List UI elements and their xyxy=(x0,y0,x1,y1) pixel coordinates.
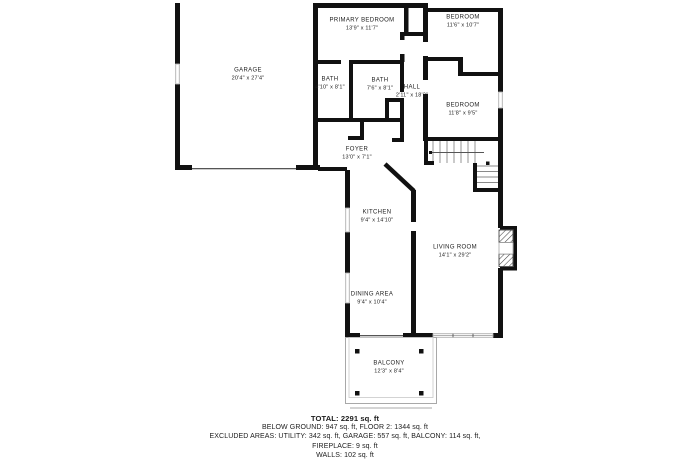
room-label-hall: HALL 2'11" x 18'2" xyxy=(396,85,428,100)
room-dims: 9'4" x 10'4" xyxy=(351,299,394,306)
room-dims: 2'11" x 18'2" xyxy=(396,92,428,99)
room-label-bedroom-mid: BEDROOM 11'8" x 9'5" xyxy=(446,103,479,118)
room-name: GARAGE xyxy=(232,68,265,76)
exterior-walls xyxy=(175,3,503,338)
room-name: KITCHEN xyxy=(361,210,394,218)
room-name: BATH xyxy=(315,77,345,85)
summary-excluded: EXCLUDED AREAS: UTILITY: 342 sq. ft, GAR… xyxy=(0,432,690,441)
floorplan-drawing xyxy=(0,0,690,460)
floorplan-page: GARAGE 20'4" x 27'4" PRIMARY BEDROOM 13'… xyxy=(0,0,690,460)
room-dims: 9'4" x 14'10" xyxy=(361,217,394,224)
room-name: BALCONY xyxy=(373,361,404,369)
room-dims: 11'8" x 9'5" xyxy=(446,110,479,117)
area-summary: TOTAL: 2291 sq. ft BELOW GROUND: 947 sq.… xyxy=(0,414,690,460)
room-dims: 7'6" x 8'1" xyxy=(367,85,393,92)
room-dims: 13'0" x 7'1" xyxy=(342,154,372,161)
room-name: BEDROOM xyxy=(446,15,479,23)
summary-walls: WALLS: 102 sq. ft xyxy=(0,451,690,460)
summary-fireplace: FIREPLACE: 9 sq. ft xyxy=(0,442,690,451)
room-dims: 13'9" x 11'7" xyxy=(329,25,394,32)
room-label-living-room: LIVING ROOM 14'1" x 29'2" xyxy=(433,245,477,260)
room-name: PRIMARY BEDROOM xyxy=(329,18,394,26)
staircase xyxy=(424,141,503,192)
room-dims: 20'4" x 27'4" xyxy=(232,75,265,82)
room-name: DINING AREA xyxy=(351,292,394,300)
room-label-kitchen: KITCHEN 9'4" x 14'10" xyxy=(361,210,394,225)
room-dims: 11'6" x 10'7" xyxy=(446,22,479,29)
room-dims: 4'10" x 8'1" xyxy=(315,84,345,91)
room-label-bath-large: BATH 7'6" x 8'1" xyxy=(367,78,393,93)
room-label-garage: GARAGE 20'4" x 27'4" xyxy=(232,68,265,83)
room-label-foyer: FOYER 13'0" x 7'1" xyxy=(342,147,372,162)
room-label-bath-small: BATH 4'10" x 8'1" xyxy=(315,77,345,92)
room-name: LIVING ROOM xyxy=(433,245,477,253)
room-name: BEDROOM xyxy=(446,103,479,111)
summary-below-ground: BELOW GROUND: 947 sq. ft, FLOOR 2: 1344 … xyxy=(0,423,690,432)
room-label-dining-area: DINING AREA 9'4" x 10'4" xyxy=(351,292,394,307)
room-dims: 14'1" x 29'2" xyxy=(433,252,477,259)
room-label-bedroom-top: BEDROOM 11'6" x 10'7" xyxy=(446,15,479,30)
room-label-primary-bedroom: PRIMARY BEDROOM 13'9" x 11'7" xyxy=(329,18,394,33)
door-openings xyxy=(192,168,403,336)
diagonal-wall xyxy=(385,164,414,191)
fireplace xyxy=(499,226,517,271)
room-label-balcony: BALCONY 12'3" x 8'4" xyxy=(373,361,404,376)
summary-total: TOTAL: 2291 sq. ft xyxy=(0,414,690,423)
room-name: HALL xyxy=(396,85,428,93)
room-name: FOYER xyxy=(342,147,372,155)
room-dims: 12'3" x 8'4" xyxy=(373,368,404,375)
room-name: BATH xyxy=(367,78,393,86)
